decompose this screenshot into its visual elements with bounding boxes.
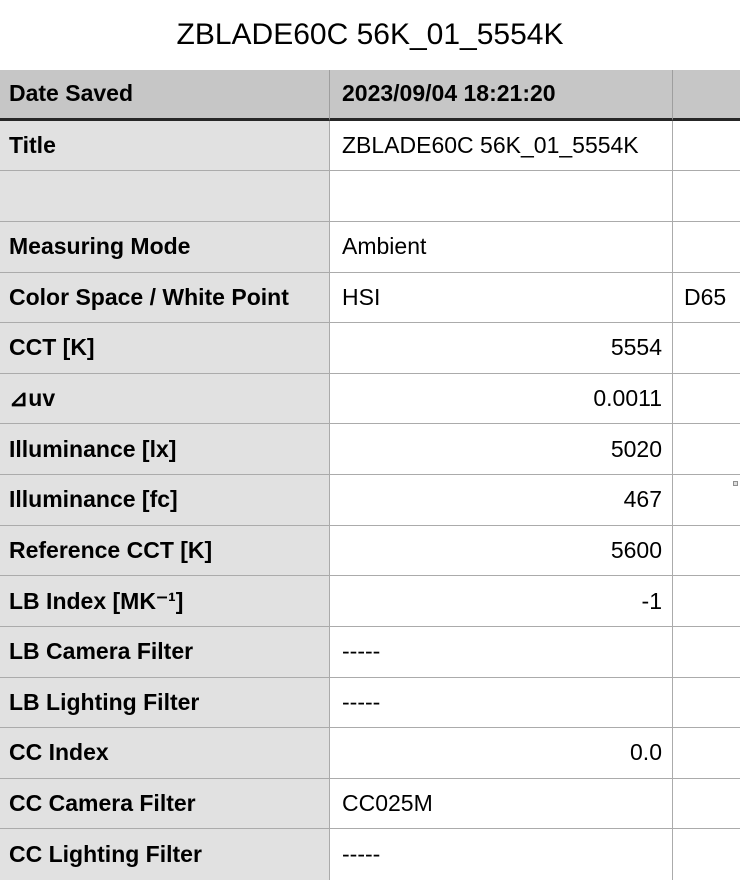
illuminance-lx-value: 5020 <box>330 424 673 475</box>
measuring-mode-value: Ambient <box>330 222 673 273</box>
cc-index-label: CC Index <box>0 728 330 779</box>
lb-lighting-filter-extra <box>673 678 740 729</box>
lb-lighting-filter-value: ----- <box>330 678 673 729</box>
color-space-value: HSI <box>330 273 673 324</box>
row-lb-camera-filter: LB Camera Filter ----- <box>0 627 740 678</box>
cc-index-extra <box>673 728 740 779</box>
delta-uv-label: ⊿uv <box>0 374 330 425</box>
row-color-space: Color Space / White Point HSI D65 <box>0 273 740 324</box>
reference-cct-label: Reference CCT [K] <box>0 526 330 577</box>
empty-label <box>0 171 330 222</box>
date-saved-value: 2023/09/04 18:21:20 <box>330 70 673 121</box>
row-title: Title ZBLADE60C 56K_01_5554K <box>0 121 740 172</box>
cct-value: 5554 <box>330 323 673 374</box>
lb-index-extra <box>673 576 740 627</box>
row-date-saved: Date Saved 2023/09/04 18:21:20 <box>0 70 740 121</box>
cct-extra <box>673 323 740 374</box>
reference-cct-extra <box>673 526 740 577</box>
measurement-table: Date Saved 2023/09/04 18:21:20 Title ZBL… <box>0 70 740 880</box>
lb-lighting-filter-label: LB Lighting Filter <box>0 678 330 729</box>
measurement-report-screen: ZBLADE60C 56K_01_5554K Date Saved 2023/0… <box>0 0 740 880</box>
row-illuminance-fc: Illuminance [fc] 467 <box>0 475 740 526</box>
title-bar: ZBLADE60C 56K_01_5554K <box>0 0 740 70</box>
cc-index-value: 0.0 <box>330 728 673 779</box>
row-lb-index: LB Index [MK⁻¹] -1 <box>0 576 740 627</box>
illuminance-fc-label: Illuminance [fc] <box>0 475 330 526</box>
title-label: Title <box>0 121 330 172</box>
lb-camera-filter-label: LB Camera Filter <box>0 627 330 678</box>
empty-value <box>330 171 673 222</box>
white-point-value: D65 <box>673 273 740 324</box>
row-measuring-mode: Measuring Mode Ambient <box>0 222 740 273</box>
row-cct: CCT [K] 5554 <box>0 323 740 374</box>
cc-camera-filter-value: CC025M <box>330 779 673 830</box>
cct-label: CCT [K] <box>0 323 330 374</box>
lb-camera-filter-value: ----- <box>330 627 673 678</box>
cc-lighting-filter-extra <box>673 829 740 880</box>
row-cc-camera-filter: CC Camera Filter CC025M <box>0 779 740 830</box>
date-saved-label: Date Saved <box>0 70 330 121</box>
stray-mark <box>733 481 738 486</box>
title-value: ZBLADE60C 56K_01_5554K <box>330 121 673 172</box>
measuring-mode-extra <box>673 222 740 273</box>
row-lb-lighting-filter: LB Lighting Filter ----- <box>0 678 740 729</box>
lb-camera-filter-extra <box>673 627 740 678</box>
cc-lighting-filter-label: CC Lighting Filter <box>0 829 330 880</box>
measuring-mode-label: Measuring Mode <box>0 222 330 273</box>
illuminance-lx-label: Illuminance [lx] <box>0 424 330 475</box>
row-cc-lighting-filter: CC Lighting Filter ----- <box>0 829 740 880</box>
illuminance-fc-extra <box>673 475 740 526</box>
cc-lighting-filter-value: ----- <box>330 829 673 880</box>
date-saved-extra <box>673 70 740 121</box>
row-reference-cct: Reference CCT [K] 5600 <box>0 526 740 577</box>
cc-camera-filter-extra <box>673 779 740 830</box>
row-cc-index: CC Index 0.0 <box>0 728 740 779</box>
lb-index-value: -1 <box>330 576 673 627</box>
page-title: ZBLADE60C 56K_01_5554K <box>177 18 564 52</box>
row-illuminance-lx: Illuminance [lx] 5020 <box>0 424 740 475</box>
color-space-label: Color Space / White Point <box>0 273 330 324</box>
illuminance-lx-extra <box>673 424 740 475</box>
illuminance-fc-value: 467 <box>330 475 673 526</box>
lb-index-label: LB Index [MK⁻¹] <box>0 576 330 627</box>
delta-uv-value: 0.0011 <box>330 374 673 425</box>
delta-uv-extra <box>673 374 740 425</box>
row-empty <box>0 171 740 222</box>
reference-cct-value: 5600 <box>330 526 673 577</box>
row-delta-uv: ⊿uv 0.0011 <box>0 374 740 425</box>
title-extra <box>673 121 740 172</box>
empty-extra <box>673 171 740 222</box>
cc-camera-filter-label: CC Camera Filter <box>0 779 330 830</box>
